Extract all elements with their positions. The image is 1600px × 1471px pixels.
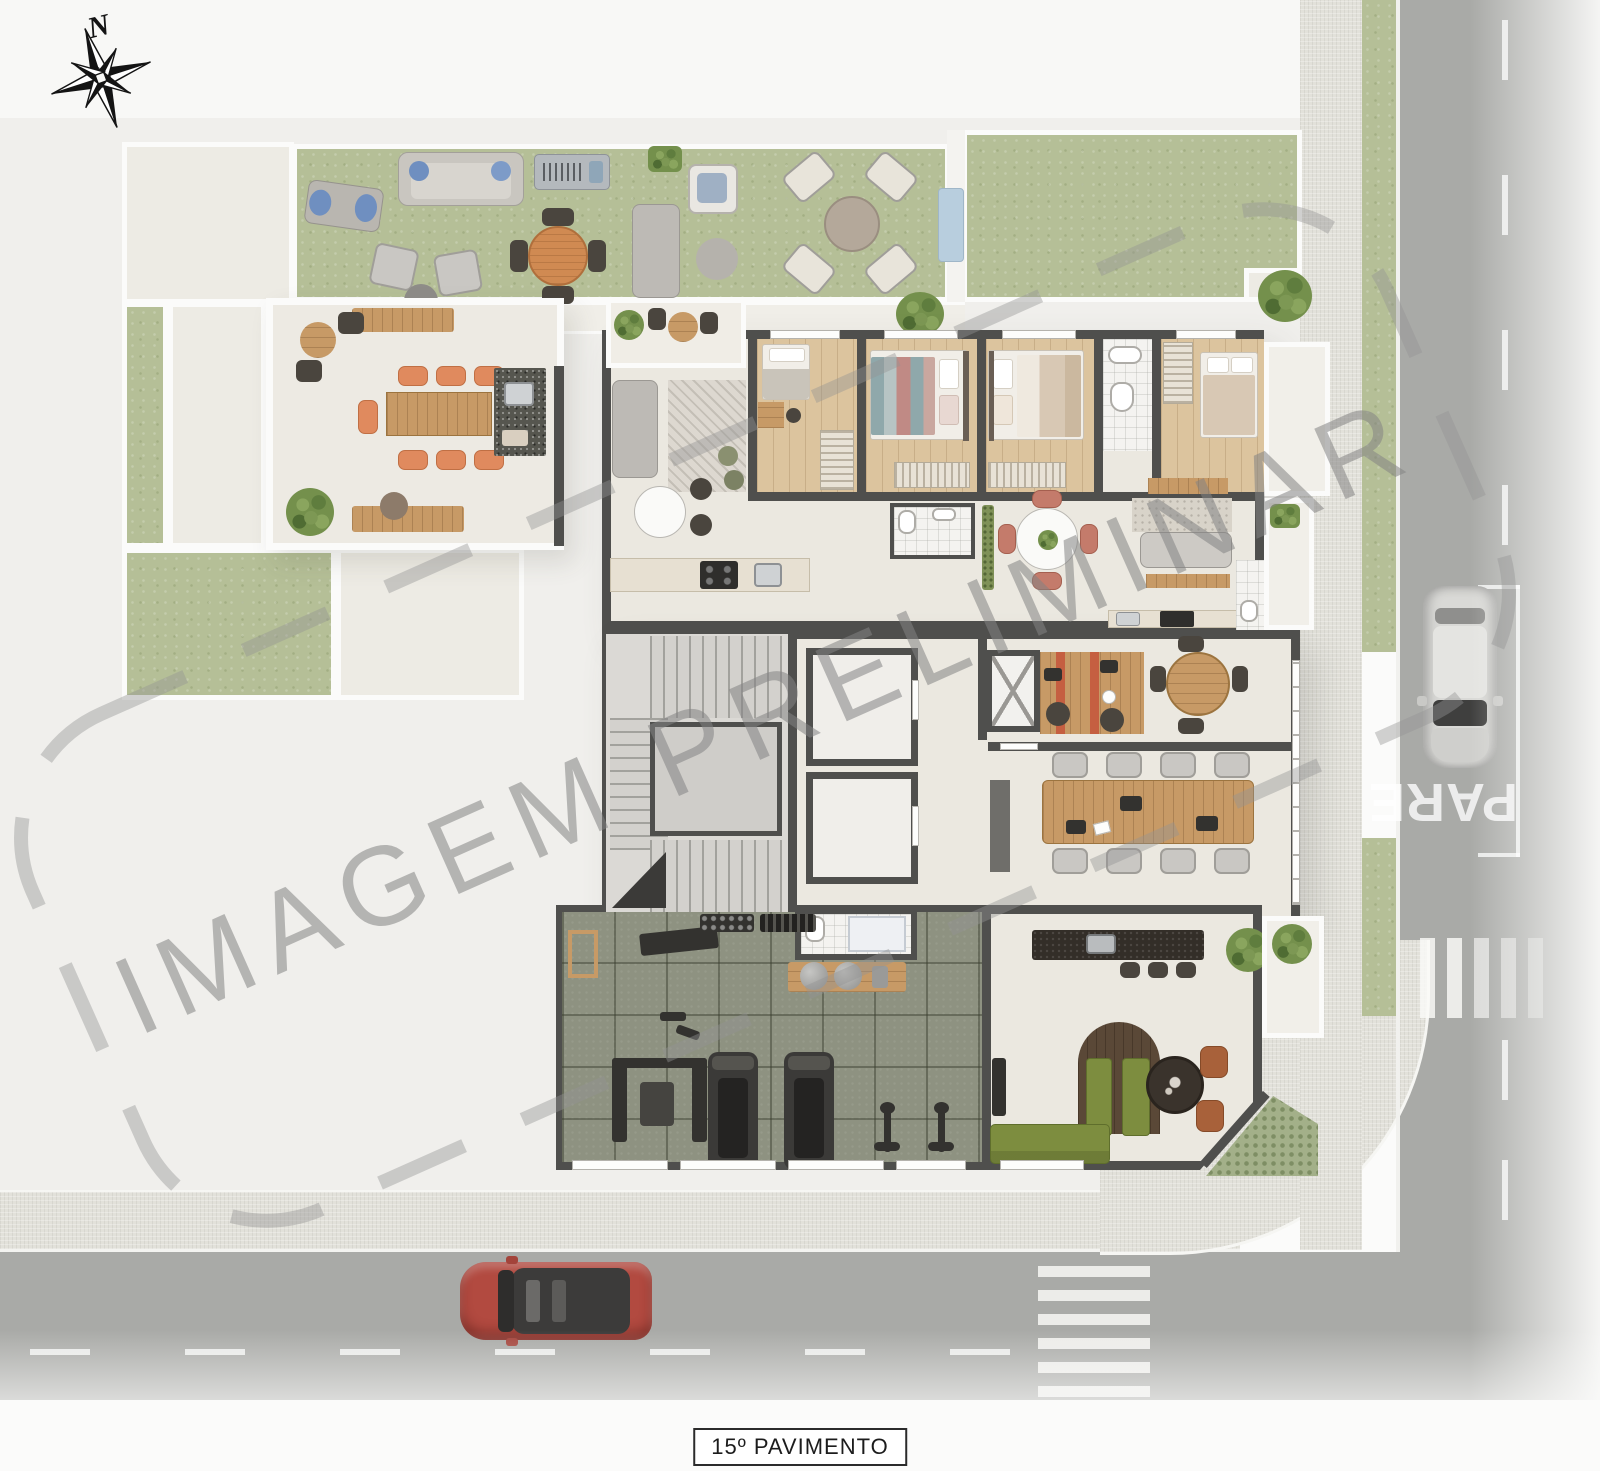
grass-sw bbox=[122, 548, 336, 700]
window bbox=[770, 330, 840, 339]
wall bbox=[978, 634, 987, 740]
stone-accent bbox=[1132, 498, 1232, 532]
ottoman bbox=[696, 238, 738, 280]
meeting-chair bbox=[1052, 752, 1088, 778]
stair-flight-top bbox=[650, 636, 782, 718]
nook-chair bbox=[1178, 636, 1204, 652]
shrub bbox=[1258, 270, 1312, 322]
crosswalk-stripe bbox=[1474, 938, 1489, 1018]
armchair-cushion bbox=[697, 173, 727, 203]
shower-stall bbox=[848, 916, 906, 952]
bar-stool bbox=[1148, 962, 1168, 978]
white-car-mirror bbox=[1417, 696, 1427, 706]
elevator-door bbox=[912, 680, 919, 720]
laptop bbox=[1066, 820, 1086, 834]
red-car-mirror bbox=[506, 1256, 518, 1264]
gray-sofa bbox=[1140, 532, 1232, 568]
lane-dash bbox=[950, 1349, 1010, 1355]
leather-chair bbox=[1200, 1046, 1228, 1078]
wall-segment bbox=[554, 366, 564, 546]
meeting-chair bbox=[1106, 752, 1142, 778]
meeting-chair bbox=[1160, 752, 1196, 778]
pillow bbox=[1231, 357, 1253, 373]
red-car-seats bbox=[552, 1280, 566, 1322]
wall bbox=[788, 634, 797, 921]
elevator-shaft bbox=[806, 772, 918, 884]
desk-divider bbox=[1090, 652, 1099, 734]
crosswalk-stripe bbox=[1038, 1362, 1150, 1373]
laptop bbox=[1120, 796, 1142, 811]
kitchen-sink bbox=[754, 563, 782, 587]
garden-armchair bbox=[433, 248, 484, 297]
lane-dash bbox=[1502, 330, 1508, 390]
bar-stool bbox=[1176, 962, 1196, 978]
dining-chair-orange bbox=[436, 366, 466, 386]
island-sink bbox=[504, 382, 534, 406]
plant bbox=[1272, 924, 1312, 964]
toilet bbox=[1240, 600, 1258, 622]
treadmill-belt bbox=[794, 1078, 824, 1158]
crosswalk-stripe bbox=[1420, 938, 1435, 1018]
white-car bbox=[1421, 586, 1499, 768]
pillow bbox=[939, 359, 959, 389]
grass-strip-west bbox=[122, 302, 168, 548]
console-table bbox=[992, 1058, 1006, 1116]
treadmill bbox=[784, 1052, 834, 1170]
desk-chair bbox=[786, 408, 801, 423]
white-car-roof bbox=[1433, 626, 1487, 698]
crosswalk-stripe bbox=[1038, 1266, 1150, 1277]
bar-sink bbox=[1086, 934, 1116, 954]
white-car-windshield bbox=[1433, 700, 1487, 726]
bench bbox=[352, 308, 454, 332]
bistro-chair bbox=[338, 312, 364, 334]
balcony-plant bbox=[1270, 504, 1300, 528]
gray-sofa bbox=[612, 380, 658, 478]
pillow bbox=[769, 348, 805, 362]
dining-stool bbox=[690, 478, 712, 500]
bar-counter bbox=[1032, 930, 1204, 960]
grill-lid bbox=[589, 161, 603, 183]
white-car-hood bbox=[1431, 728, 1489, 762]
stove bbox=[1160, 611, 1194, 627]
bar-stool bbox=[1120, 962, 1140, 978]
meeting-chair bbox=[1106, 848, 1142, 874]
bench bbox=[352, 506, 464, 532]
verge-strip-top bbox=[1362, 0, 1396, 652]
wall bbox=[1152, 339, 1161, 495]
garden-chair bbox=[510, 240, 528, 272]
desk bbox=[758, 402, 784, 428]
dining-stool bbox=[690, 514, 712, 536]
wood-stall-bars bbox=[568, 930, 598, 978]
lounge-armchair bbox=[688, 164, 738, 214]
treadmill-console bbox=[712, 1056, 754, 1070]
toilet bbox=[898, 510, 916, 534]
lane-dash bbox=[1502, 175, 1508, 235]
white-car-mirror bbox=[1493, 696, 1503, 706]
double-bed bbox=[1200, 352, 1258, 438]
floor-label: 15º PAVIMENTO bbox=[693, 1428, 907, 1466]
spin-bike bbox=[872, 1102, 902, 1156]
wardrobe bbox=[894, 462, 970, 488]
bathroom-sink bbox=[932, 508, 956, 521]
yoga-mat bbox=[872, 966, 888, 988]
window bbox=[788, 1160, 884, 1170]
door-gap bbox=[1000, 743, 1038, 750]
dumbbells bbox=[660, 1012, 686, 1021]
red-car bbox=[460, 1258, 652, 1344]
dining-chair-orange bbox=[398, 366, 428, 386]
leather-chair bbox=[1196, 1100, 1224, 1132]
crosswalk-stripe bbox=[1447, 938, 1462, 1018]
window bbox=[572, 1160, 668, 1170]
window bbox=[884, 330, 958, 339]
stove bbox=[700, 561, 738, 589]
dining-chair bbox=[998, 524, 1016, 554]
window-wall bbox=[1292, 660, 1300, 905]
wall bbox=[857, 339, 866, 495]
wardrobe bbox=[988, 462, 1066, 488]
lane-dash bbox=[185, 1349, 245, 1355]
sofa-pillow-blue bbox=[491, 161, 511, 181]
double-bed bbox=[870, 350, 968, 440]
wall-clock bbox=[1102, 690, 1116, 704]
planter bbox=[648, 146, 682, 172]
water-feature bbox=[938, 188, 964, 262]
elevator-shaft bbox=[806, 648, 918, 766]
terrace-nw bbox=[122, 142, 294, 304]
double-bed bbox=[988, 350, 1084, 440]
white-car-rear-window bbox=[1435, 608, 1485, 624]
elevator-door bbox=[912, 806, 919, 846]
bathroom-sink bbox=[1108, 346, 1142, 364]
tv-sideboard bbox=[1148, 478, 1228, 494]
stair-landing bbox=[650, 722, 782, 836]
gourmet-dining-table bbox=[386, 392, 492, 436]
crosswalk-stripe bbox=[1038, 1314, 1150, 1325]
cable-machine-bar bbox=[612, 1058, 707, 1068]
office-chair bbox=[1100, 708, 1124, 732]
wall bbox=[977, 339, 986, 495]
pillow bbox=[993, 395, 1013, 425]
cable-machine-post bbox=[612, 1058, 627, 1142]
meeting-table bbox=[1042, 780, 1254, 844]
dining-chair bbox=[1080, 524, 1098, 554]
green-sofa bbox=[990, 1124, 1110, 1164]
exercise-ball bbox=[800, 962, 828, 990]
stool bbox=[380, 492, 408, 520]
crosswalk-stripe bbox=[1038, 1386, 1150, 1397]
exercise-ball bbox=[834, 962, 862, 990]
serving-tray bbox=[502, 430, 528, 446]
wall bbox=[748, 339, 757, 495]
bbq-grill bbox=[534, 154, 610, 190]
verge-strip-bottom bbox=[1362, 838, 1396, 1016]
red-car-windshield bbox=[498, 1270, 514, 1332]
treadmill-console bbox=[788, 1056, 830, 1070]
lounge-sofa bbox=[632, 204, 680, 298]
nook-chair bbox=[1232, 666, 1248, 692]
dining-chair-orange bbox=[398, 450, 428, 470]
garden-armchair bbox=[368, 242, 420, 292]
cable-machine-post bbox=[692, 1058, 707, 1142]
garden-round-table bbox=[824, 196, 880, 252]
bottom-street bbox=[0, 1252, 1600, 1400]
dining-chair bbox=[1032, 572, 1062, 590]
bike-handlebar bbox=[874, 1142, 900, 1151]
lounger-pillow bbox=[353, 193, 379, 224]
round-dining-table bbox=[634, 486, 686, 538]
balcony-chair bbox=[648, 308, 666, 330]
bike-handlebar bbox=[928, 1142, 954, 1151]
table-centerpiece bbox=[1038, 530, 1058, 550]
window bbox=[680, 1160, 776, 1170]
wall bbox=[1094, 339, 1103, 495]
nook-chair bbox=[1150, 666, 1166, 692]
plant bbox=[286, 488, 334, 536]
pare-road-marking: PARE bbox=[1414, 762, 1518, 842]
window bbox=[896, 1160, 966, 1170]
wardrobe bbox=[820, 430, 854, 490]
lane-dash bbox=[495, 1349, 555, 1355]
grill-grate bbox=[543, 163, 583, 181]
orange-garden-table bbox=[528, 226, 588, 286]
pillow bbox=[1207, 357, 1229, 373]
office-chair bbox=[1046, 702, 1070, 726]
crosswalk-stripe bbox=[1528, 938, 1543, 1018]
terrace-w bbox=[168, 302, 266, 548]
spin-bike bbox=[926, 1102, 956, 1156]
vertical-garden bbox=[982, 505, 994, 590]
blanket-beige bbox=[1017, 355, 1081, 437]
lane-dash bbox=[340, 1349, 400, 1355]
treadmill-belt bbox=[718, 1078, 748, 1158]
compass-rose: N bbox=[36, 16, 166, 140]
laptop bbox=[1196, 816, 1218, 831]
meeting-nook-table bbox=[1166, 652, 1230, 716]
window bbox=[1002, 330, 1076, 339]
lane-dash bbox=[1502, 20, 1508, 80]
lane-dash bbox=[1502, 1160, 1508, 1220]
round-dining-table bbox=[1016, 508, 1078, 570]
lane-dash bbox=[1502, 1040, 1508, 1100]
meeting-chair bbox=[1214, 752, 1250, 778]
crosswalk-stripe bbox=[1501, 938, 1516, 1018]
floor-plan-scene: PARE bbox=[0, 0, 1600, 1471]
pillow bbox=[939, 395, 959, 425]
pillow bbox=[993, 359, 1013, 389]
balcony-plant bbox=[614, 310, 644, 340]
lane-dash bbox=[650, 1349, 710, 1355]
lounger-pillow bbox=[308, 188, 333, 217]
bistro-chair bbox=[296, 360, 322, 382]
shaft-duct bbox=[990, 780, 1010, 872]
blanket-beige bbox=[1203, 375, 1255, 435]
kitchen-sink bbox=[1116, 612, 1140, 626]
pouf bbox=[718, 446, 738, 466]
laptop bbox=[1100, 660, 1118, 673]
wardrobe bbox=[1163, 342, 1193, 404]
window bbox=[1176, 330, 1236, 339]
headboard bbox=[963, 351, 969, 441]
headboard bbox=[989, 351, 994, 441]
crosswalk-stripe bbox=[1038, 1338, 1150, 1349]
blanket bbox=[763, 369, 809, 399]
dumbbell-rack bbox=[700, 914, 754, 932]
stop-box-line bbox=[1478, 853, 1520, 857]
barbell-rack bbox=[760, 914, 816, 932]
stair-flight-bottom bbox=[650, 840, 782, 918]
crosswalk-stripe bbox=[1038, 1290, 1150, 1301]
right-curb-line bbox=[1396, 0, 1400, 1252]
lane-dash bbox=[1502, 485, 1508, 545]
meeting-chair bbox=[1214, 848, 1250, 874]
meeting-chair bbox=[1052, 848, 1088, 874]
garden-chair bbox=[588, 240, 606, 272]
pouf bbox=[724, 470, 744, 490]
terrace-sw bbox=[336, 548, 524, 700]
bistro-table bbox=[300, 322, 336, 358]
single-bed bbox=[762, 344, 810, 400]
blanket-striped bbox=[871, 357, 935, 435]
balcony-table bbox=[668, 312, 698, 342]
red-car-seats bbox=[526, 1280, 540, 1322]
low-bench bbox=[1146, 574, 1230, 588]
meeting-chair bbox=[1160, 848, 1196, 874]
dining-chair bbox=[1032, 490, 1062, 508]
elevator-cab bbox=[986, 650, 1040, 732]
lane-dash bbox=[805, 1349, 865, 1355]
bike-seat bbox=[880, 1102, 895, 1114]
outdoor-sofa bbox=[398, 152, 524, 206]
garden-chair bbox=[542, 208, 574, 226]
treadmill bbox=[708, 1052, 758, 1170]
balcony-ne bbox=[1264, 342, 1330, 496]
sofa-pillow-blue bbox=[409, 161, 429, 181]
dining-chair-orange bbox=[358, 400, 378, 434]
booth-bench-green bbox=[1122, 1058, 1150, 1136]
lane-dash bbox=[30, 1349, 90, 1355]
bottom-sidewalk bbox=[0, 1190, 1240, 1252]
window bbox=[1000, 1160, 1084, 1170]
nook-chair bbox=[1178, 718, 1204, 734]
bike-seat bbox=[934, 1102, 949, 1114]
dining-chair-orange bbox=[436, 450, 466, 470]
balcony-chair bbox=[700, 312, 718, 334]
laptop bbox=[1044, 668, 1062, 681]
red-car-mirror bbox=[506, 1338, 518, 1346]
toilet bbox=[1110, 382, 1134, 412]
weight-stack bbox=[640, 1082, 674, 1126]
